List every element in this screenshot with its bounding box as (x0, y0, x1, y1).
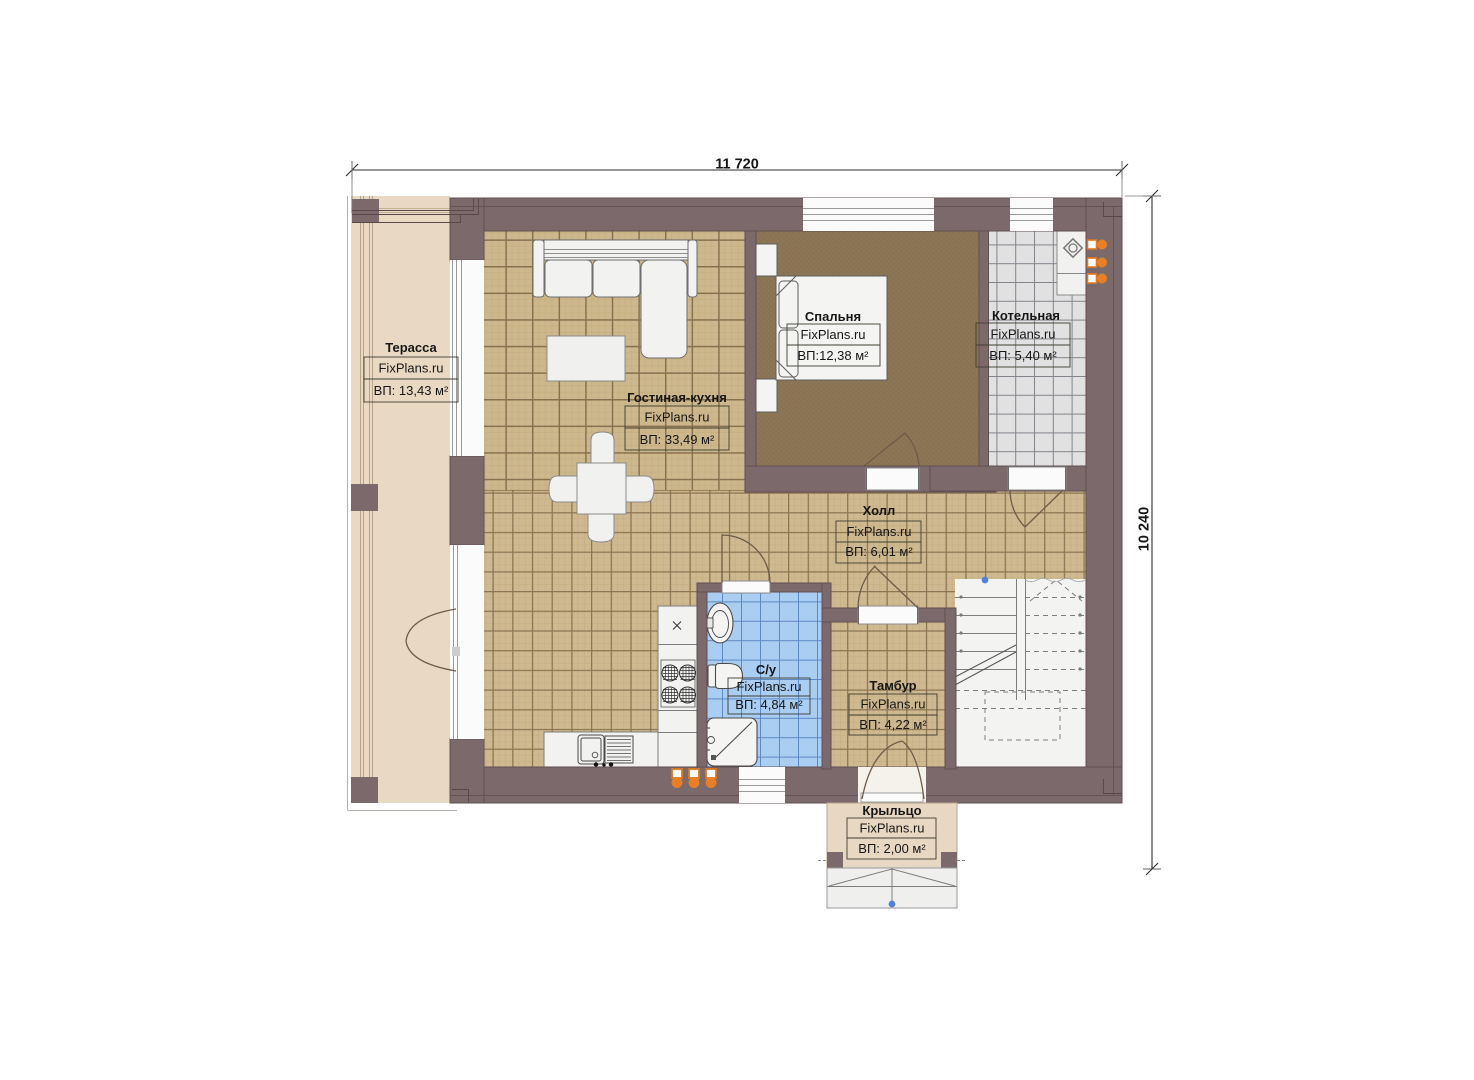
svg-text:FixPlans.ru: FixPlans.ru (859, 821, 924, 836)
svg-text:Котельная: Котельная (992, 308, 1060, 323)
svg-text:FixPlans.ru: FixPlans.ru (378, 361, 443, 376)
svg-text:Холл: Холл (863, 503, 896, 518)
svg-text:ВП: 6,01 м²: ВП: 6,01 м² (845, 544, 913, 559)
svg-text:ВП:12,38 м²: ВП:12,38 м² (797, 348, 869, 363)
svg-text:11 720: 11 720 (715, 157, 759, 173)
svg-text:ВП: 13,43 м²: ВП: 13,43 м² (374, 383, 449, 398)
svg-text:FixPlans.ru: FixPlans.ru (860, 697, 925, 712)
svg-text:FixPlans.ru: FixPlans.ru (736, 679, 801, 694)
svg-text:FixPlans.ru: FixPlans.ru (990, 327, 1055, 342)
svg-text:Тамбур: Тамбур (869, 678, 916, 693)
svg-text:ВП: 4,84 м²: ВП: 4,84 м² (735, 697, 803, 712)
svg-text:ВП: 5,40 м²: ВП: 5,40 м² (989, 348, 1057, 363)
svg-text:ВП: 33,49 м²: ВП: 33,49 м² (640, 432, 715, 447)
svg-text:FixPlans.ru: FixPlans.ru (846, 524, 911, 539)
svg-text:Терасса: Терасса (385, 340, 437, 355)
svg-text:ВП: 2,00 м²: ВП: 2,00 м² (858, 841, 926, 856)
svg-text:FixPlans.ru: FixPlans.ru (800, 327, 865, 342)
svg-text:Спальня: Спальня (805, 309, 861, 324)
svg-text:ВП: 4,22 м²: ВП: 4,22 м² (859, 717, 927, 732)
svg-text:С/у: С/у (756, 662, 777, 677)
svg-text:10 240: 10 240 (1137, 507, 1153, 551)
svg-text:Крыльцо: Крыльцо (862, 803, 921, 818)
svg-text:FixPlans.ru: FixPlans.ru (644, 410, 709, 425)
svg-text:Гостиная-кухня: Гостиная-кухня (627, 390, 727, 405)
